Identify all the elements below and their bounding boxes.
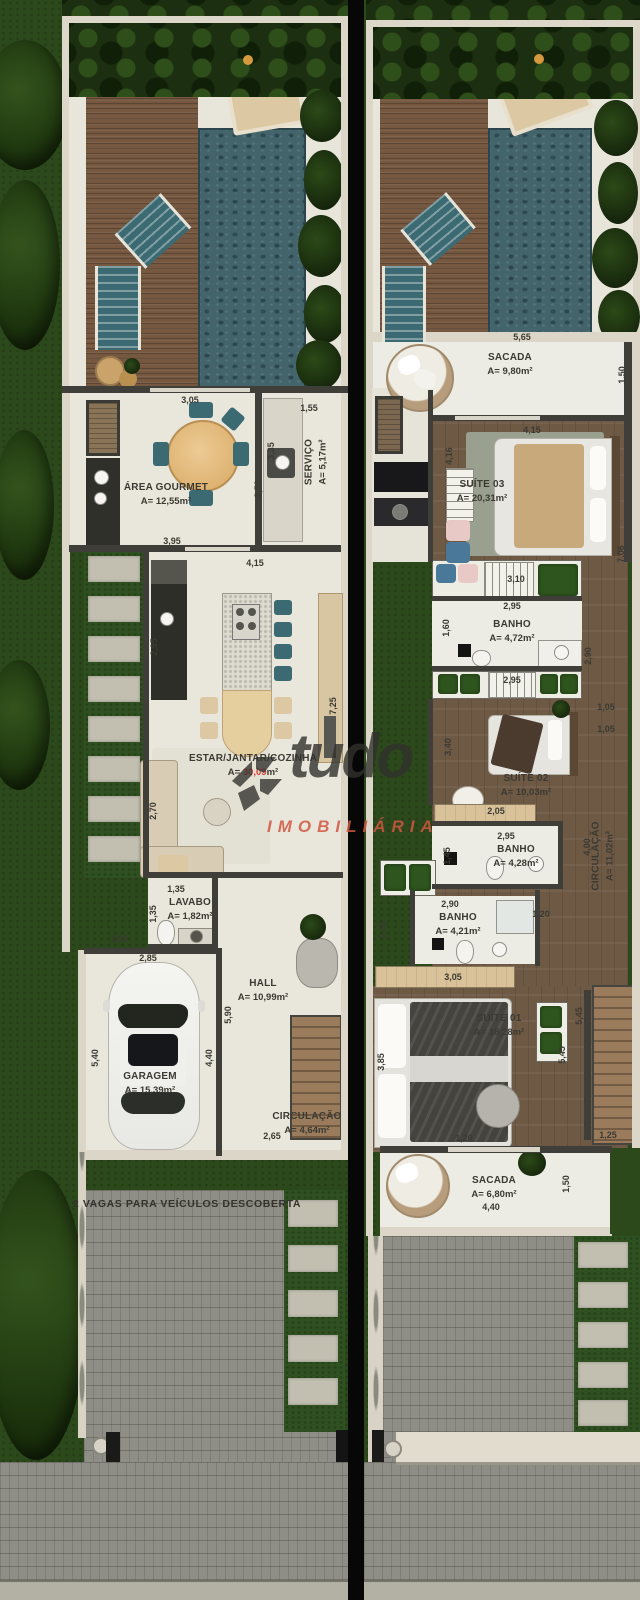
- hedge: [373, 27, 633, 99]
- toilet: [157, 920, 175, 946]
- stepping-stone: [288, 1245, 338, 1272]
- pillow: [590, 446, 606, 490]
- island-dining-extension: [222, 690, 272, 757]
- wall: [432, 821, 562, 826]
- room-name: GARAGEM: [123, 1070, 177, 1084]
- bush: [594, 100, 638, 156]
- wall: [428, 390, 433, 562]
- room-area: A= 5,17m²: [316, 439, 329, 485]
- floor-lamp: [432, 938, 444, 950]
- pillow: [590, 498, 606, 542]
- dimension-label: 1,35: [148, 905, 158, 923]
- room-name: SUÍTE 03: [457, 478, 507, 492]
- kitchen-sink: [160, 612, 174, 626]
- closet-clothes: [538, 564, 578, 596]
- dimension-label: 2,95: [497, 831, 515, 841]
- room-label-suite3: SUÍTE 03 A= 20,31m²: [457, 478, 507, 505]
- room-label-servico: SERVIÇO A= 5,17m²: [302, 439, 329, 485]
- dimension-label: 2,70: [148, 802, 158, 820]
- wall: [143, 552, 149, 878]
- room-area: A= 30,09m²: [189, 766, 317, 779]
- chair: [274, 722, 292, 739]
- pouf: [476, 1084, 520, 1128]
- room-label-suite1: SUÍTE 01 A= 18,28m²: [474, 1012, 524, 1039]
- room-label-circulacao-upper: CIRCULAÇÃO A= 11,02m²: [589, 821, 616, 890]
- room-area: A= 1,82m²: [167, 910, 212, 923]
- room-name: CIRCULAÇÃO: [272, 1110, 341, 1124]
- dimension-label: 4,15: [523, 425, 541, 435]
- pot-plant: [124, 358, 140, 374]
- dimension-label: 2,90: [441, 899, 459, 909]
- perimeter-wall: [62, 386, 70, 952]
- room-area: A= 9,80m²: [487, 365, 532, 378]
- perimeter-wall: [78, 950, 86, 1152]
- dimension-label: 2,95: [503, 601, 521, 611]
- hedge: [69, 23, 341, 97]
- floorplan-canvas: ÁREA GOURMET A= 12,55m² SERVIÇO A= 5,17m…: [0, 0, 640, 1600]
- closet-clothes: [438, 674, 458, 694]
- chair: [200, 722, 218, 739]
- dimension-label: 3,35: [266, 442, 276, 460]
- room-area: A= 11,02m²: [603, 821, 616, 890]
- garage-front-wall: [86, 1150, 341, 1160]
- dimension-label: 1,20: [532, 909, 550, 919]
- bush: [296, 340, 342, 390]
- room-label-garagem: GARAGEM A= 15,39m²: [123, 1070, 177, 1097]
- room-name: HALL: [238, 977, 288, 991]
- indoor-plant: [552, 700, 570, 718]
- room-name: SACADA: [471, 1174, 516, 1188]
- dimension-label: 3,50: [253, 480, 263, 498]
- blue-chair: [446, 542, 470, 563]
- sink-bowl: [94, 470, 109, 485]
- room-name: BANHO: [435, 911, 480, 925]
- stepping-stone: [88, 796, 140, 822]
- unit-knob: [392, 504, 408, 520]
- dimension-label: 1,35: [167, 884, 185, 894]
- dimension-label: 2,05: [487, 806, 505, 816]
- burner: [248, 608, 256, 616]
- chair: [153, 442, 169, 466]
- room-area: A= 10,03m²: [501, 786, 551, 799]
- room-label-banho2: BANHO A= 4,28m²: [493, 843, 538, 870]
- car-windshield: [118, 1004, 188, 1030]
- toilet: [472, 650, 491, 667]
- chair: [200, 697, 218, 714]
- wall: [432, 884, 562, 889]
- balcony-plant: [518, 1150, 546, 1176]
- room-area: A= 4,64m²: [272, 1124, 341, 1137]
- side-fence: [78, 1152, 86, 1438]
- dimension-label: 1,50: [617, 366, 627, 384]
- dimension-label: 4,40: [204, 1049, 214, 1067]
- dimension-label: 5,45: [574, 1007, 584, 1025]
- dimension-label: 1,55: [300, 403, 318, 413]
- stepping-stone: [88, 556, 140, 582]
- room-label-area-gourmet: ÁREA GOURMET A= 12,55m²: [124, 481, 208, 508]
- bush: [304, 150, 344, 210]
- wall: [535, 890, 540, 966]
- dimension-label: 4,00: [582, 838, 592, 856]
- sink-bowl: [554, 645, 569, 660]
- dimension-label: 2,95: [149, 638, 159, 656]
- stool: [274, 622, 292, 637]
- dimension-label: 5,40: [90, 1049, 100, 1067]
- perimeter-wall: [632, 342, 640, 1148]
- dimension-label: 1,60: [441, 619, 451, 637]
- perimeter-wall: [341, 16, 348, 1160]
- tree: [0, 180, 60, 350]
- room-name: CIRCULAÇÃO: [589, 821, 603, 890]
- wall: [558, 821, 563, 889]
- car-mirror: [103, 1000, 110, 1012]
- curb: [0, 1580, 640, 1600]
- bench: [158, 855, 188, 872]
- bush: [598, 162, 638, 224]
- room-area: A= 18,28m²: [474, 1026, 524, 1039]
- burner: [248, 622, 256, 630]
- dimension-label: 1,20: [455, 1133, 473, 1143]
- wall: [216, 950, 222, 1156]
- lot-divider: [348, 0, 364, 1600]
- dimension-label: 2,95: [503, 675, 521, 685]
- grass-patch: [610, 1148, 640, 1234]
- shower: [496, 900, 534, 934]
- dimension-label: 3,95: [163, 536, 181, 546]
- round-daybed: [386, 1154, 450, 1218]
- room-name: ÁREA GOURMET: [124, 481, 208, 495]
- kitchen-counter: [151, 560, 187, 700]
- gate-post-cap: [384, 1440, 402, 1458]
- utility-cabinet: [375, 396, 403, 454]
- dimension-label: 5,65: [513, 332, 531, 342]
- stepping-stone: [288, 1290, 338, 1317]
- stepping-stone: [578, 1322, 628, 1348]
- room-area: A= 10,99m²: [238, 991, 288, 1004]
- stepping-stone: [288, 1335, 338, 1362]
- dimension-label: 7,06: [616, 545, 626, 563]
- dimension-label: 1,05: [597, 724, 615, 734]
- dimension-label: 3,10: [507, 574, 525, 584]
- sink-bowl: [94, 492, 107, 505]
- side-fence: [368, 1236, 383, 1462]
- gate-post: [336, 1430, 348, 1462]
- stepping-stone: [578, 1400, 628, 1426]
- car: [108, 962, 200, 1150]
- gate-post: [372, 1430, 384, 1462]
- closet-clothes: [540, 1006, 562, 1028]
- deck-chair: [382, 266, 426, 342]
- dimension-label: 2,65: [263, 1131, 281, 1141]
- bush: [304, 285, 346, 343]
- dimension-label: 3,40: [443, 738, 453, 756]
- dimension-label: 1,45: [378, 921, 388, 939]
- dimension-label: 1,05: [597, 702, 615, 712]
- outdoor-cabinet: [86, 400, 120, 456]
- room-label-suite2: SUÍTE 02 A= 10,03m²: [501, 772, 551, 799]
- tree: [0, 40, 68, 170]
- stepping-stone: [88, 596, 140, 622]
- dimension-label: 2,85: [139, 953, 157, 963]
- room-area: A= 20,31m²: [457, 492, 507, 505]
- parking-note: 2 VAGAS PARA VEÍCULOS DESCOBERTA: [73, 1198, 301, 1210]
- pink-chair: [458, 564, 478, 583]
- chair: [233, 442, 249, 466]
- stepping-stone: [288, 1378, 338, 1405]
- burner: [236, 608, 244, 616]
- pool-ball: [243, 55, 253, 65]
- dimension-label: 1,25: [599, 1130, 617, 1140]
- closet-clothes: [384, 864, 406, 891]
- dimension-label: 4,16: [444, 447, 454, 465]
- balcony-door: [448, 1147, 540, 1152]
- dimension-label: 5,45: [557, 1046, 567, 1064]
- room-area: A= 15,39m²: [123, 1084, 177, 1097]
- room-label-circulacao-ground: CIRCULAÇÃO A= 4,64m²: [272, 1110, 341, 1137]
- bush: [592, 228, 638, 288]
- dimension-label: 2,90: [583, 647, 593, 665]
- room-name: SUÍTE 02: [501, 772, 551, 786]
- indoor-plant: [300, 914, 326, 940]
- room-label-banho1: BANHO A= 4,21m²: [435, 911, 480, 938]
- room-name: SUÍTE 01: [474, 1012, 524, 1026]
- room-area-value: 30,09: [243, 767, 267, 778]
- coffee-table: [203, 798, 231, 826]
- toilet: [456, 940, 474, 964]
- room-name: BANHO: [493, 843, 538, 857]
- sink-bowl: [190, 930, 203, 943]
- room-area: A= 6,80m²: [471, 1188, 516, 1201]
- room-name: BANHO: [489, 618, 534, 632]
- room-label-estar: ESTAR/JANTAR/COZINHA A= 30,09m²: [189, 752, 317, 779]
- pillow: [378, 1074, 406, 1138]
- hedge: [366, 0, 640, 22]
- armchair: [296, 938, 338, 988]
- room-label-lavabo: LAVABO A= 1,82m²: [167, 896, 212, 923]
- balcony-door: [455, 416, 540, 420]
- car-mirror: [198, 1000, 205, 1012]
- room-label-sacada-top: SACADA A= 9,80m²: [487, 351, 532, 378]
- front-fence: [396, 1432, 640, 1465]
- dimension-label: 1,50: [561, 1175, 571, 1193]
- closet-clothes: [460, 674, 480, 694]
- bush: [300, 90, 344, 142]
- room-label-banho3: BANHO A= 4,72m²: [489, 618, 534, 645]
- room-name: LAVABO: [167, 896, 212, 910]
- dimension-label: 3,05: [181, 395, 199, 405]
- tv: [324, 716, 336, 758]
- room-label-hall: HALL A= 10,99m²: [238, 977, 288, 1004]
- room-name: SERVIÇO: [302, 439, 316, 485]
- pool-right: [488, 128, 592, 344]
- dimension-label: 4,15: [246, 558, 264, 568]
- tree: [0, 430, 54, 580]
- stepping-stone: [88, 636, 140, 662]
- room-area: A= 12,55m²: [124, 495, 208, 508]
- room-area: A= 4,72m²: [489, 632, 534, 645]
- burner: [236, 622, 244, 630]
- tree: [0, 1170, 86, 1460]
- dimension-label: 1,45: [442, 847, 452, 865]
- dimension-label: 3,85: [376, 1053, 386, 1071]
- sliding-door: [150, 388, 250, 392]
- room-area: A= 4,28m²: [493, 857, 538, 870]
- deck-chair: [95, 266, 141, 350]
- stepping-stone: [578, 1362, 628, 1388]
- room-name: ESTAR/JANTAR/COZINHA: [189, 752, 317, 766]
- stepping-stone: [88, 716, 140, 742]
- room-area: A= 4,21m²: [435, 925, 480, 938]
- dimension-label: 7,25: [328, 697, 338, 715]
- stepping-stone: [88, 756, 140, 782]
- closet-clothes: [540, 674, 558, 694]
- gate-post: [106, 1432, 120, 1462]
- room-name: SACADA: [487, 351, 532, 365]
- tree: [0, 660, 50, 790]
- dimension-label: 4,40: [482, 1202, 500, 1212]
- dimension-label: 1,55: [110, 934, 128, 944]
- stool: [274, 600, 292, 615]
- bed-runner: [410, 1056, 508, 1082]
- wall: [410, 890, 415, 966]
- stepping-stone: [578, 1242, 628, 1268]
- dimension-label: 5,90: [223, 1006, 233, 1024]
- stool: [274, 666, 292, 681]
- wall: [143, 872, 343, 878]
- wall: [380, 1227, 612, 1236]
- closet-clothes: [409, 864, 431, 891]
- wall: [255, 393, 262, 545]
- stool: [274, 644, 292, 659]
- sink-bowl: [492, 942, 507, 957]
- stepping-stone: [578, 1282, 628, 1308]
- closet-clothes: [560, 674, 578, 694]
- wall: [212, 878, 218, 950]
- pillow: [548, 720, 562, 760]
- room-label-sacada-bottom: SACADA A= 6,80m²: [471, 1174, 516, 1201]
- bush: [298, 215, 344, 277]
- pink-chair: [446, 520, 470, 541]
- door-opening: [185, 547, 250, 551]
- stair-railing: [584, 990, 591, 1140]
- wall: [432, 666, 582, 671]
- washer-door: [275, 455, 290, 470]
- stepping-stone: [88, 676, 140, 702]
- car-sunroof: [128, 1034, 178, 1066]
- pool-ball: [534, 54, 544, 64]
- technical-unit: [374, 462, 428, 492]
- stepping-stone: [88, 836, 140, 862]
- floor-lamp: [458, 644, 471, 657]
- dimension-label: 3,05: [444, 972, 462, 982]
- chair: [274, 697, 292, 714]
- pool-left: [198, 128, 306, 390]
- wall: [428, 699, 433, 805]
- bed-blanket: [514, 444, 584, 548]
- blue-chair: [436, 564, 456, 583]
